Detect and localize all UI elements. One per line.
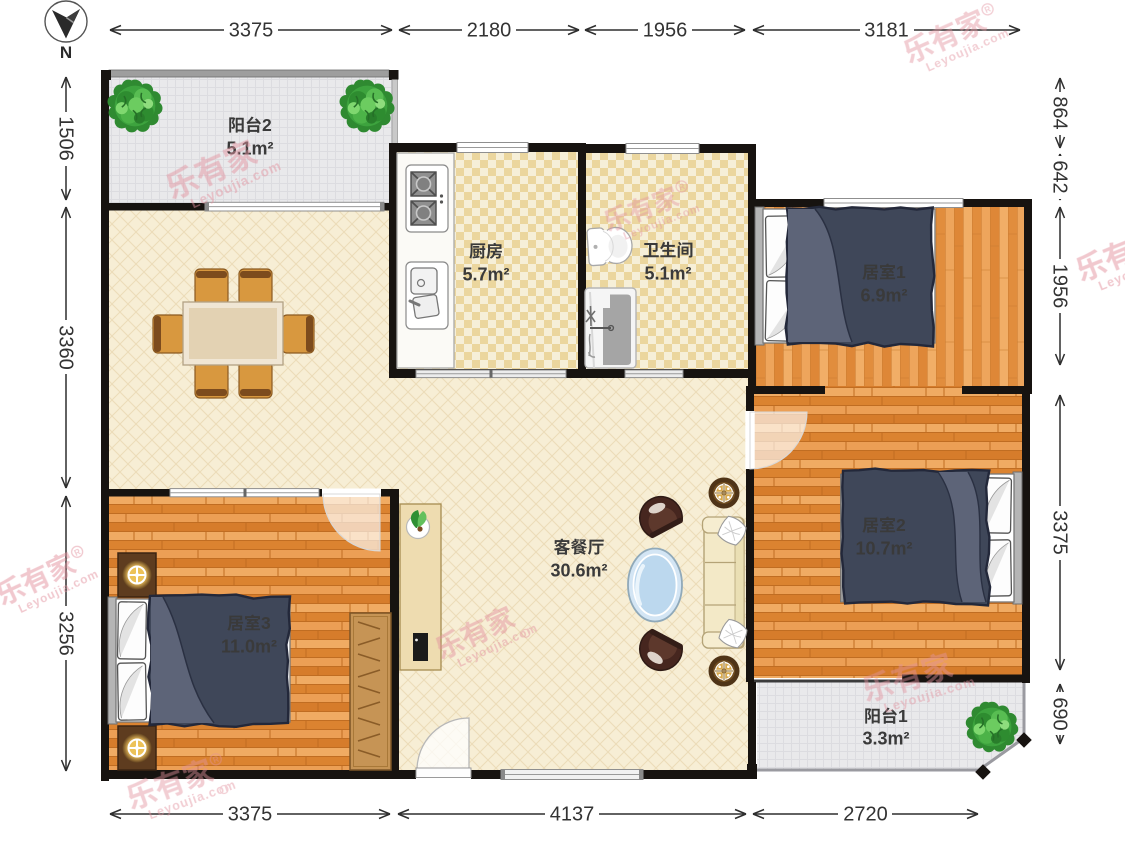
svg-text:3360: 3360: [55, 325, 77, 370]
svg-text:1: 1: [896, 262, 906, 282]
svg-text:3375: 3375: [229, 20, 274, 42]
svg-text:3: 3: [261, 613, 271, 633]
svg-text:642: 642: [1049, 160, 1071, 193]
svg-text:864: 864: [1049, 96, 1071, 129]
svg-text:11.0m²: 11.0m²: [221, 637, 277, 657]
svg-text:10.7m²: 10.7m²: [855, 539, 912, 559]
svg-text:1506: 1506: [55, 116, 77, 161]
svg-text:2180: 2180: [467, 20, 512, 42]
svg-text:N: N: [60, 43, 72, 62]
svg-text:3256: 3256: [55, 611, 77, 656]
svg-text:2: 2: [262, 115, 272, 135]
svg-text:5.7m²: 5.7m²: [462, 265, 509, 285]
svg-text:3375: 3375: [1049, 510, 1071, 555]
svg-text:5.1m²: 5.1m²: [644, 264, 691, 284]
svg-text:3181: 3181: [864, 20, 909, 42]
svg-text:690: 690: [1049, 697, 1071, 730]
svg-text:2720: 2720: [843, 804, 888, 826]
svg-text:2: 2: [896, 515, 906, 535]
svg-text:3.3m²: 3.3m²: [862, 729, 909, 749]
svg-text:6.9m²: 6.9m²: [860, 286, 907, 306]
svg-text:3375: 3375: [228, 804, 273, 826]
svg-text:1956: 1956: [643, 20, 688, 42]
svg-text:30.6m²: 30.6m²: [550, 561, 607, 581]
svg-text:1956: 1956: [1049, 264, 1071, 309]
svg-text:4137: 4137: [550, 804, 595, 826]
